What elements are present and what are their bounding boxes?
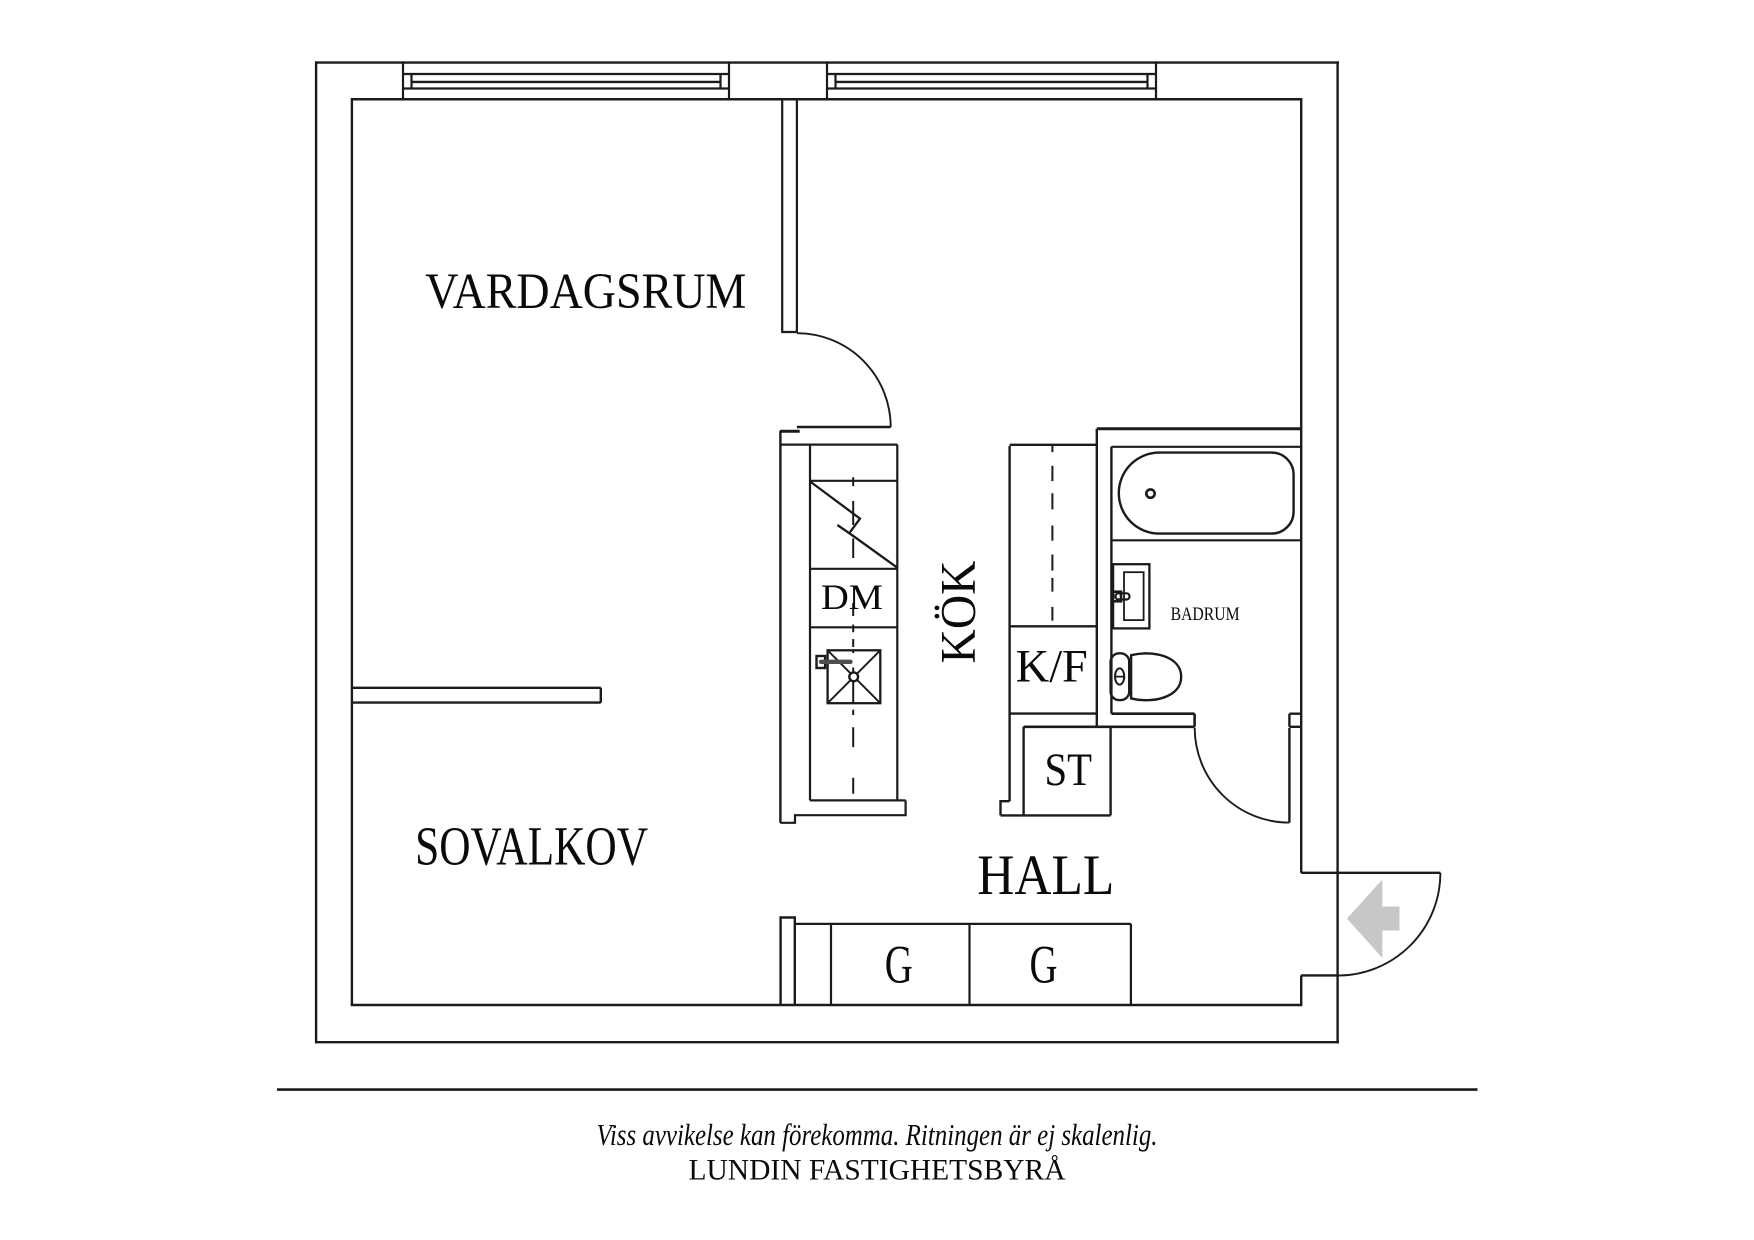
- svg-text:KÖK: KÖK: [930, 561, 986, 664]
- svg-text:BADRUM: BADRUM: [1171, 605, 1240, 625]
- svg-text:ST: ST: [1045, 744, 1093, 796]
- svg-text:LUNDIN FASTIGHETSBYRÅ: LUNDIN FASTIGHETSBYRÅ: [689, 1154, 1067, 1186]
- svg-text:SOVALKOV: SOVALKOV: [415, 816, 648, 877]
- svg-text:VARDAGSRUM: VARDAGSRUM: [425, 264, 746, 320]
- svg-text:Viss avvikelse kan förekomma.: Viss avvikelse kan förekomma. Ritningen …: [597, 1117, 1158, 1152]
- svg-text:G: G: [885, 935, 913, 995]
- svg-text:G: G: [1030, 935, 1058, 995]
- svg-text:HALL: HALL: [977, 844, 1114, 907]
- svg-text:K/F: K/F: [1016, 641, 1088, 692]
- svg-text:DM: DM: [821, 577, 883, 617]
